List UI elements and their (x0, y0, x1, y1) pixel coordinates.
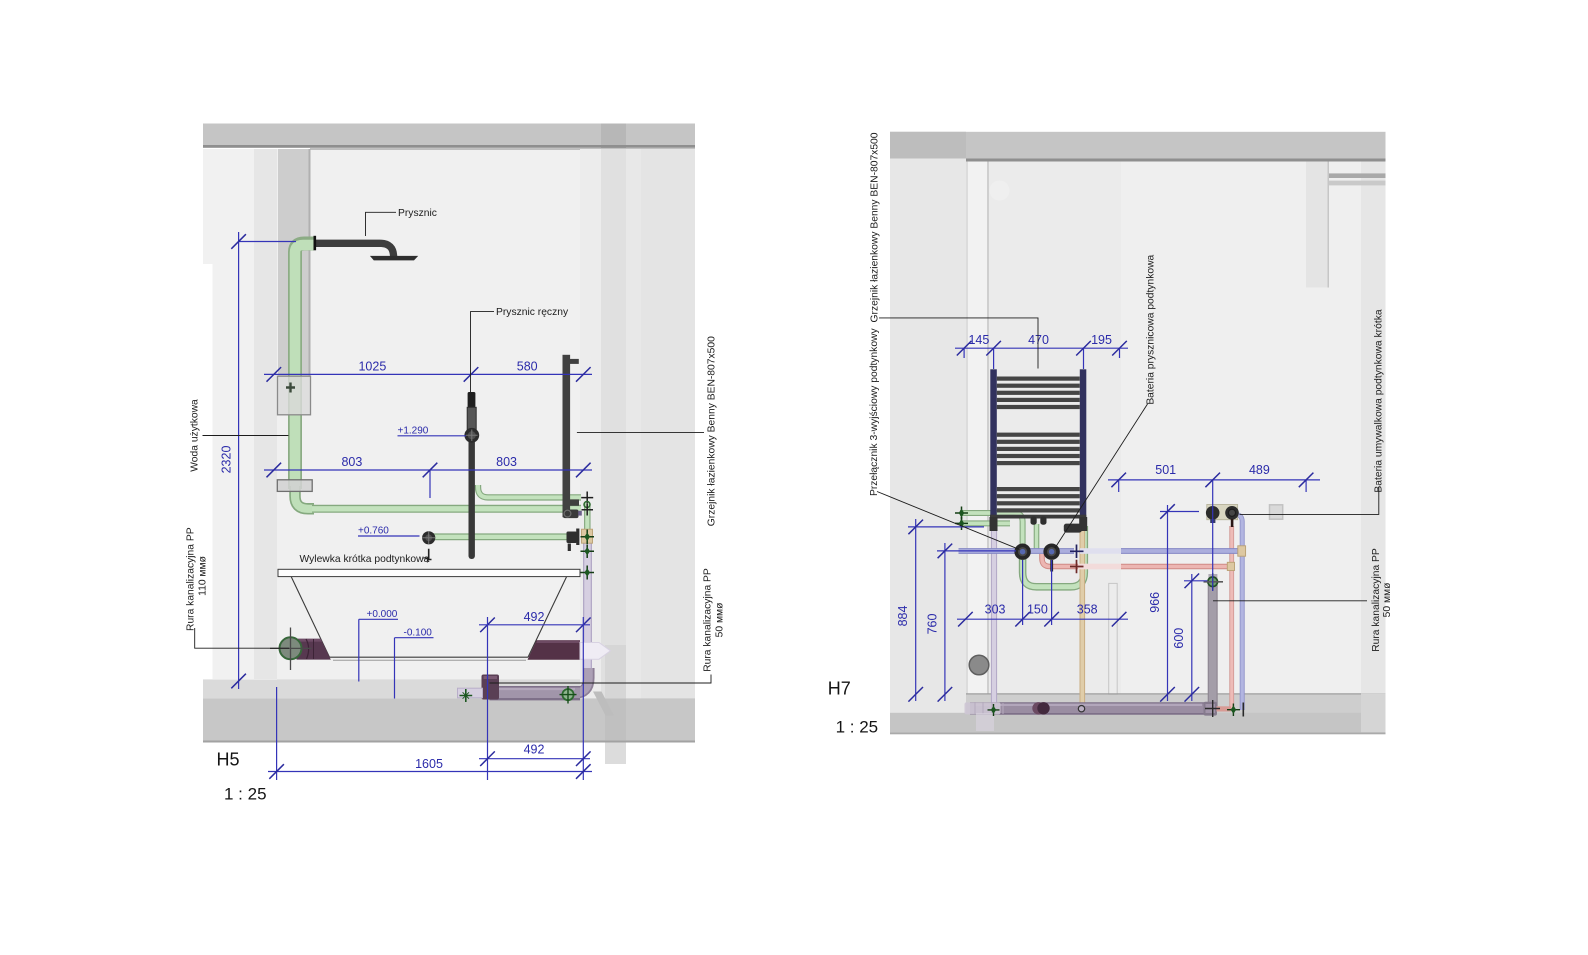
svg-text:Bateria prysznicowa podtynkowa: Bateria prysznicowa podtynkowa (1145, 254, 1156, 404)
svg-text:358: 358 (1077, 603, 1098, 617)
svg-text:501: 501 (1155, 463, 1176, 477)
svg-text:803: 803 (496, 455, 517, 469)
svg-text:110 ммø: 110 ммø (198, 555, 209, 595)
svg-text:2320: 2320 (220, 446, 234, 474)
svg-text:1025: 1025 (358, 360, 386, 374)
svg-text:-0.100: -0.100 (404, 627, 433, 638)
svg-text:492: 492 (524, 743, 545, 757)
svg-text:Bateria umywalkowa podtynkowa: Bateria umywalkowa podtynkowa krótka (1373, 309, 1384, 492)
svg-text:50 ммø: 50 ммø (1382, 582, 1393, 617)
svg-text:1 : 25: 1 : 25 (224, 785, 267, 804)
svg-text:884: 884 (896, 606, 910, 627)
svg-text:489: 489 (1249, 463, 1270, 477)
svg-text:50 ммø: 50 ммø (715, 602, 726, 637)
svg-text:Prysznic ręczny: Prysznic ręczny (496, 307, 569, 318)
svg-text:H5: H5 (217, 750, 240, 770)
svg-text:470: 470 (1028, 333, 1049, 347)
svg-text:Grzejnik łazienkowy Benny BEN-: Grzejnik łazienkowy Benny BEN-807x500 (707, 336, 718, 526)
svg-text:966: 966 (1148, 592, 1162, 613)
svg-text:1 : 25: 1 : 25 (836, 718, 879, 737)
svg-text:145: 145 (968, 333, 989, 347)
svg-text:+0.000: +0.000 (367, 609, 398, 620)
svg-text:Rura kanalizacyjna PP: Rura kanalizacyjna PP (1371, 548, 1382, 652)
svg-text:600: 600 (1172, 628, 1186, 649)
svg-text:Prysznic: Prysznic (398, 208, 437, 219)
svg-text:Wylewka krótka podtynkowa: Wylewka krótka podtynkowa (300, 554, 430, 565)
svg-text:760: 760 (926, 614, 940, 635)
svg-text:H7: H7 (828, 679, 851, 699)
svg-text:+1.290: +1.290 (398, 425, 429, 436)
svg-text:195: 195 (1091, 333, 1112, 347)
svg-text:Rura kanalizacyjna PP: Rura kanalizacyjna PP (703, 568, 714, 672)
svg-text:150: 150 (1027, 603, 1048, 617)
svg-text:Woda użytkowa: Woda użytkowa (190, 399, 201, 472)
svg-text:+0.760: +0.760 (358, 526, 389, 537)
svg-text:803: 803 (341, 455, 362, 469)
svg-text:Grzejnik łazienkowy Benny BEN-: Grzejnik łazienkowy Benny BEN-807x500 (869, 132, 880, 322)
svg-text:Przełącznik 3-wyjściowy podtyn: Przełącznik 3-wyjściowy podtynkowy (869, 328, 880, 497)
svg-text:Rura kanalizacyjna PP: Rura kanalizacyjna PP (186, 527, 197, 631)
svg-text:492: 492 (524, 610, 545, 624)
svg-text:580: 580 (517, 360, 538, 374)
svg-text:303: 303 (985, 603, 1006, 617)
svg-text:1605: 1605 (415, 757, 443, 771)
